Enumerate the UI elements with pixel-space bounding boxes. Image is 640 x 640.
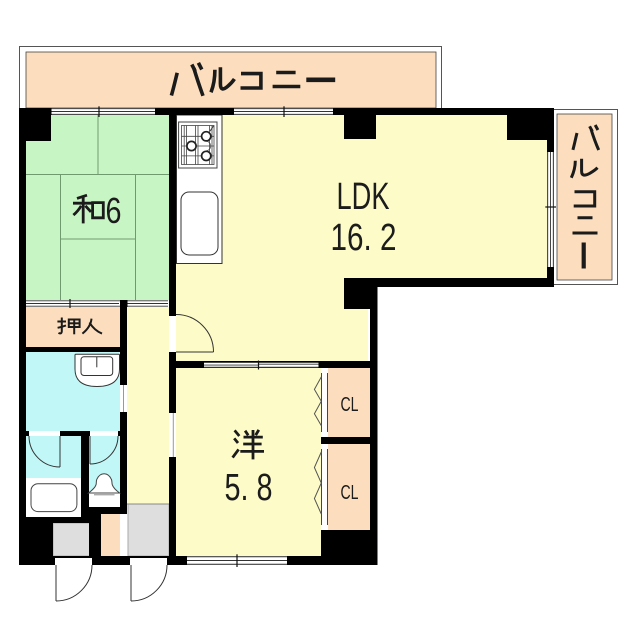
svg-text:6: 6 xyxy=(106,190,122,231)
svg-text:CL: CL xyxy=(341,482,359,504)
svg-text:CL: CL xyxy=(341,394,359,416)
svg-text:16. 2: 16. 2 xyxy=(331,217,397,259)
svg-text:5. 8: 5. 8 xyxy=(225,467,273,509)
svg-text:LDK: LDK xyxy=(337,176,390,218)
